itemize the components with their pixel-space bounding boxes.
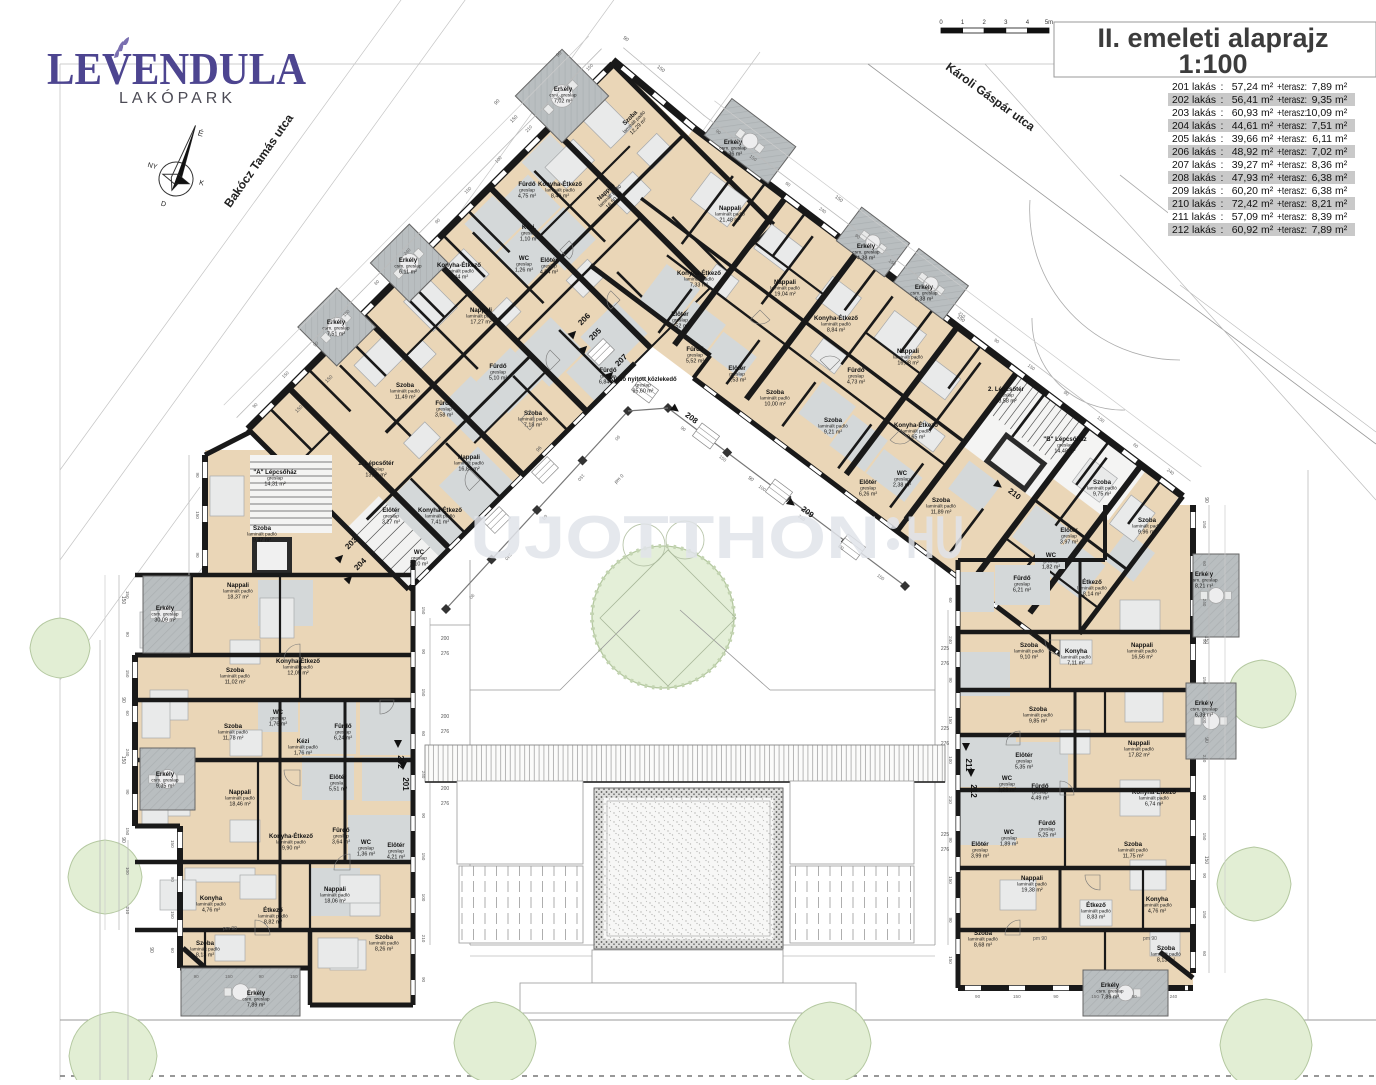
svg-text:9,10 m²: 9,10 m² (1020, 655, 1038, 661)
svg-text:3,27 m²: 3,27 m² (382, 520, 400, 526)
svg-text:Fürdő: Fürdő (332, 827, 350, 834)
svg-text:7,41 m²: 7,41 m² (431, 520, 449, 526)
svg-text:Kézi: Kézi (297, 738, 310, 745)
svg-text:211 lakás: 211 lakás (1172, 211, 1216, 223)
svg-text:39,27: 39,27 (1232, 159, 1258, 171)
svg-text:Nappali: Nappali (227, 582, 249, 589)
svg-text:150: 150 (421, 853, 426, 861)
svg-text:+terasz:: +terasz: (1277, 94, 1307, 106)
svg-text:8,84 m²: 8,84 m² (827, 328, 845, 334)
svg-text:Erkély: Erkély (327, 319, 346, 326)
svg-text:7,89: 7,89 (1312, 224, 1333, 236)
svg-text:1,29 m²: 1,29 m² (998, 788, 1016, 794)
svg-text:m²: m² (1261, 172, 1274, 184)
svg-text:+terasz:: +terasz: (1277, 198, 1307, 210)
svg-text:8,83 m²: 8,83 m² (1087, 915, 1105, 921)
svg-text:90: 90 (259, 974, 265, 979)
svg-text:pm 90: pm 90 (223, 926, 237, 932)
svg-text:4,54 m²: 4,54 m² (540, 270, 558, 276)
svg-text:Elötér: Elötér (1060, 527, 1078, 534)
svg-text:90: 90 (421, 649, 426, 655)
svg-text:+terasz:: +terasz: (1277, 159, 1307, 171)
svg-text:7,89 m²: 7,89 m² (1101, 995, 1119, 1001)
svg-text:Szoba: Szoba (1020, 642, 1039, 649)
svg-text:7,51 m²: 7,51 m² (327, 332, 345, 338)
svg-text:3,99 m²: 3,99 m² (971, 854, 989, 860)
svg-text:150: 150 (421, 607, 426, 615)
svg-text:Fürdő: Fürdő (1038, 820, 1056, 827)
svg-text:Elötér: Elötér (329, 774, 347, 781)
svg-text:150: 150 (948, 876, 953, 884)
svg-text:1,26 m²: 1,26 m² (515, 268, 533, 274)
svg-text:150: 150 (948, 956, 953, 964)
svg-text:m²: m² (1261, 146, 1274, 158)
svg-text:Erkély: Erkély (857, 243, 876, 250)
svg-text:2,10 m²: 2,10 m² (410, 562, 428, 568)
svg-text:WC: WC (414, 549, 425, 556)
svg-text:16,56 m²: 16,56 m² (1131, 655, 1152, 661)
svg-text:8,13 m²: 8,13 m² (196, 953, 214, 959)
svg-text:Kézi.: Kézi. (522, 224, 537, 231)
svg-text:+terasz:: +terasz: (1277, 133, 1307, 145)
svg-text:greslap: greslap (635, 383, 651, 388)
svg-text:m²: m² (1335, 211, 1348, 223)
svg-text:Szoba: Szoba (396, 382, 415, 389)
svg-text:4,21 m²: 4,21 m² (387, 855, 405, 861)
svg-text:Elötér: Elötér (1015, 752, 1033, 759)
svg-text:150: 150 (1091, 994, 1099, 999)
svg-text:18,06 m²: 18,06 m² (324, 899, 345, 905)
svg-text::: : (1221, 224, 1224, 236)
svg-text:pm 90: pm 90 (1143, 936, 1157, 942)
svg-text:6,38: 6,38 (1312, 172, 1333, 184)
svg-text:60: 60 (170, 948, 175, 954)
svg-text:210: 210 (948, 796, 953, 804)
svg-text:Szoba: Szoba (1029, 706, 1048, 713)
svg-text:200: 200 (441, 786, 450, 792)
svg-text:5,10 m²: 5,10 m² (489, 376, 507, 382)
svg-text:Nappali: Nappali (324, 886, 346, 893)
svg-text:Elötér: Elötér (387, 842, 405, 849)
svg-text:m²: m² (1261, 159, 1274, 171)
svg-text:8,26 m²: 8,26 m² (375, 947, 393, 953)
svg-text:5,35 m²: 5,35 m² (1015, 765, 1033, 771)
svg-text:150: 150 (125, 670, 130, 678)
svg-text:100: 100 (948, 756, 953, 764)
svg-text:Étkező: Étkező (1086, 901, 1106, 909)
svg-text:8,82 m²: 8,82 m² (264, 920, 282, 926)
svg-text:"A" Lépcsőház: "A" Lépcsőház (253, 469, 296, 476)
svg-text:150: 150 (125, 828, 130, 836)
svg-text:Erkély: Erkély (399, 257, 418, 264)
svg-text:8,21 m²: 8,21 m² (1195, 584, 1213, 590)
svg-text:3,58 m²: 3,58 m² (435, 413, 453, 419)
svg-text:Elötér: Elötér (971, 841, 989, 848)
svg-text:13,58 m²: 13,58 m² (995, 399, 1016, 405)
svg-text:m²: m² (1261, 120, 1274, 132)
svg-text:9,90 m²: 9,90 m² (282, 846, 300, 852)
svg-text:Fürdő: Fürdő (1031, 783, 1049, 790)
svg-text:6,74 m²: 6,74 m² (1145, 802, 1163, 808)
svg-text::: : (1221, 94, 1224, 106)
svg-text::: : (1221, 159, 1224, 171)
svg-text:48,92: 48,92 (1232, 146, 1258, 158)
svg-text:3,44 m²: 3,44 m² (450, 275, 468, 281)
svg-text:90: 90 (194, 974, 200, 979)
svg-text:m²: m² (1335, 120, 1348, 132)
svg-text:90: 90 (421, 813, 426, 819)
svg-text:5,51 m²: 5,51 m² (329, 787, 347, 793)
svg-text:1,76 m²: 1,76 m² (294, 751, 312, 757)
svg-text:4,73 m²: 4,73 m² (847, 380, 865, 386)
svg-text:207 lakás: 207 lakás (1172, 159, 1216, 171)
svg-text:3,64 m²: 3,64 m² (332, 840, 350, 846)
svg-text:m²: m² (1261, 185, 1274, 197)
svg-text:Fürdő: Fürdő (847, 367, 865, 374)
svg-text:60: 60 (1202, 561, 1207, 567)
svg-text::: : (1221, 198, 1224, 210)
svg-text:6,38 m²: 6,38 m² (915, 297, 933, 303)
svg-text:+terasz:: +terasz: (1277, 81, 1307, 93)
svg-text:240: 240 (421, 771, 426, 779)
svg-text:13,58 m²: 13,58 m² (365, 473, 386, 479)
svg-text:Szoba: Szoba (1093, 479, 1112, 486)
svg-text:Szoba: Szoba (932, 497, 951, 504)
svg-text:14,31 m²: 14,31 m² (264, 482, 285, 488)
svg-text:4,53 m²: 4,53 m² (728, 378, 746, 384)
svg-text:6,11 m²: 6,11 m² (399, 270, 417, 276)
svg-text:6,21 m²: 6,21 m² (1013, 588, 1031, 594)
svg-text:Konyha-Étkező: Konyha-Étkező (1132, 788, 1176, 796)
svg-text:210: 210 (421, 935, 426, 943)
svg-text:21,48 m²: 21,48 m² (719, 218, 740, 224)
svg-text:Konyha: Konyha (1065, 648, 1088, 655)
svg-text:90: 90 (1202, 873, 1207, 879)
svg-text:150: 150 (125, 591, 130, 599)
svg-text:Erkély: Erkély (156, 605, 175, 612)
svg-text:2,38 m²: 2,38 m² (893, 483, 911, 489)
svg-text:Szoba: Szoba (766, 389, 785, 396)
svg-text:4,75 m²: 4,75 m² (518, 194, 536, 200)
svg-text:44,61: 44,61 (1232, 120, 1258, 132)
svg-text::: : (1221, 81, 1224, 93)
svg-text:Konyha-Étkező: Konyha-Étkező (418, 506, 462, 514)
svg-text:Étkező: Étkező (1082, 578, 1102, 586)
svg-text:8,39: 8,39 (1312, 211, 1333, 223)
svg-text:WC: WC (361, 839, 372, 846)
svg-text:+terasz:: +terasz: (1277, 224, 1307, 236)
svg-text:m²: m² (1261, 211, 1274, 223)
svg-text:Nappali: Nappali (1128, 740, 1150, 747)
svg-text:18,37 m²: 18,37 m² (227, 595, 248, 601)
svg-text:150: 150 (1202, 521, 1207, 529)
svg-text::: : (1221, 107, 1224, 119)
svg-text:+terasz:: +terasz: (1277, 172, 1307, 184)
svg-text:95,60 m²: 95,60 m² (633, 389, 654, 395)
svg-text:9,35: 9,35 (1312, 94, 1333, 106)
svg-text:9,35 m²: 9,35 m² (156, 784, 174, 790)
svg-text:pm 90: pm 90 (1033, 936, 1047, 942)
svg-text:3,97 m²: 3,97 m² (1060, 540, 1078, 546)
svg-text:30,09 m²: 30,09 m² (154, 618, 175, 624)
svg-text:150: 150 (225, 974, 233, 979)
svg-text:150: 150 (1203, 856, 1209, 865)
svg-text:Erkély: Erkély (1101, 982, 1120, 989)
svg-text:60: 60 (1132, 994, 1138, 999)
svg-text::: : (1221, 185, 1224, 197)
svg-text:210: 210 (1202, 755, 1207, 763)
svg-text:+terasz:: +terasz: (1277, 211, 1307, 223)
svg-text:60,93: 60,93 (1232, 107, 1258, 119)
svg-text:m²: m² (1335, 133, 1348, 145)
svg-text:WC: WC (1004, 829, 1015, 836)
svg-text:8,21: 8,21 (1312, 198, 1333, 210)
svg-text:Elötér: Elötér (671, 311, 689, 318)
svg-text:14,48 m²: 14,48 m² (1054, 449, 1075, 455)
svg-text:150: 150 (948, 716, 953, 724)
svg-text:100: 100 (1202, 716, 1207, 724)
svg-text:276: 276 (941, 661, 950, 667)
svg-text:6,11: 6,11 (1312, 133, 1332, 145)
svg-text:11,78 m²: 11,78 m² (223, 736, 244, 742)
svg-text:6,24 m²: 6,24 m² (334, 736, 352, 742)
svg-text:210: 210 (125, 906, 130, 914)
svg-text:276: 276 (941, 741, 950, 747)
svg-text:39,66: 39,66 (1232, 133, 1258, 145)
svg-text:+terasz:: +terasz: (1277, 107, 1307, 119)
svg-text:90: 90 (148, 947, 154, 953)
svg-text:Konyha: Konyha (1146, 896, 1169, 903)
svg-text:Fürdő: Fürdő (489, 363, 507, 370)
svg-text:8,68 m²: 8,68 m² (974, 943, 992, 949)
svg-text:Szoba: Szoba (226, 667, 245, 674)
svg-text:60: 60 (421, 731, 426, 737)
svg-text:Étkező: Étkező (263, 906, 283, 914)
svg-text:m²: m² (1261, 107, 1274, 119)
svg-text:Fürdő: Fürdő (518, 181, 536, 188)
svg-text:225: 225 (941, 726, 950, 732)
svg-text:m²: m² (1335, 81, 1348, 93)
svg-text:11,49 m²: 11,49 m² (395, 395, 416, 401)
svg-text:90: 90 (1203, 497, 1209, 503)
svg-text:150: 150 (1202, 911, 1207, 919)
svg-text:150: 150 (170, 840, 175, 848)
svg-text:Konyha-Étkező: Konyha-Étkező (677, 269, 721, 277)
svg-text:m²: m² (1261, 224, 1274, 236)
svg-text:Nappali: Nappali (458, 454, 480, 461)
svg-text:2. Lépcsőtér: 2. Lépcsőtér (988, 386, 1025, 393)
svg-text:Konyha-Étkező: Konyha-Étkező (814, 314, 858, 322)
svg-text:1,10 m²: 1,10 m² (520, 237, 538, 243)
svg-text:Elötér: Elötér (540, 257, 558, 264)
svg-text:Nappali: Nappali (774, 279, 796, 286)
svg-text:1:100: 1:100 (1178, 49, 1247, 79)
svg-text:Szoba: Szoba (1138, 517, 1157, 524)
svg-text:m²: m² (1335, 159, 1348, 171)
svg-text:9,21 m²: 9,21 m² (824, 430, 842, 436)
svg-text:201: 201 (401, 777, 410, 791)
svg-text:225: 225 (941, 646, 950, 652)
svg-text::: : (1221, 146, 1224, 158)
svg-text:208 lakás: 208 lakás (1172, 172, 1216, 184)
svg-text::: : (1221, 172, 1224, 184)
svg-text:WC: WC (1002, 775, 1013, 782)
svg-text:WC: WC (519, 255, 530, 262)
svg-text:150: 150 (1202, 833, 1207, 841)
svg-text:LEVENDULA: LEVENDULA (47, 43, 306, 94)
svg-text:m²: m² (1261, 198, 1274, 210)
svg-text:Erkély: Erkély (1195, 700, 1214, 707)
svg-text:Fürdő: Fürdő (334, 723, 352, 730)
svg-text:m²: m² (1335, 198, 1348, 210)
svg-text:Konyha-Étkező: Konyha-Étkező (276, 657, 320, 665)
svg-text:1,89 m²: 1,89 m² (1000, 842, 1018, 848)
svg-text:1,82 m²: 1,82 m² (1042, 565, 1060, 571)
svg-text:7,89 m²: 7,89 m² (247, 1003, 265, 1009)
svg-text:17,82 m²: 17,82 m² (1128, 753, 1149, 759)
svg-text:1,36 m²: 1,36 m² (357, 852, 375, 858)
svg-text:Fürdő: Fürdő (599, 367, 617, 374)
svg-text:90: 90 (421, 977, 426, 983)
svg-text:m²: m² (1261, 81, 1274, 93)
svg-text:100: 100 (125, 867, 130, 875)
svg-text:Elötér: Elötér (728, 365, 746, 372)
svg-text:Szoba: Szoba (253, 525, 272, 532)
svg-text:150: 150 (421, 689, 426, 697)
svg-text:240: 240 (1170, 994, 1178, 999)
svg-text:Szoba: Szoba (1157, 945, 1176, 952)
svg-text:240: 240 (1202, 599, 1207, 607)
svg-text:206 lakás: 206 lakás (1172, 146, 1216, 158)
svg-text:202 lakás: 202 lakás (1172, 94, 1216, 106)
svg-text:Konyha-Étkező: Konyha-Étkező (437, 261, 481, 269)
svg-text:56,41: 56,41 (1232, 94, 1258, 106)
svg-text:240: 240 (948, 636, 953, 644)
svg-text:200: 200 (441, 714, 450, 720)
svg-text:90: 90 (120, 697, 126, 703)
svg-text:m²: m² (1335, 94, 1348, 106)
svg-text:60,92: 60,92 (1232, 224, 1258, 236)
svg-text:19,04 m²: 19,04 m² (774, 292, 795, 298)
svg-text:LAKÓPARK: LAKÓPARK (119, 88, 236, 107)
svg-text:Szoba: Szoba (196, 940, 215, 947)
svg-text:+terasz:: +terasz: (1277, 120, 1307, 132)
svg-text:WC: WC (1046, 552, 1057, 559)
svg-text:209 lakás: 209 lakás (1172, 185, 1216, 197)
svg-text:18,46 m²: 18,46 m² (229, 802, 250, 808)
svg-text:150: 150 (170, 911, 175, 919)
svg-text:+terasz:: +terasz: (1277, 146, 1307, 158)
svg-text:9,47 m²: 9,47 m² (253, 538, 271, 544)
svg-text:6,26 m²: 6,26 m² (859, 492, 877, 498)
svg-text:60: 60 (1202, 951, 1207, 957)
svg-text:19,38 m²: 19,38 m² (1021, 888, 1042, 894)
svg-text:Nappali: Nappali (719, 205, 741, 212)
svg-text:HU: HU (906, 504, 964, 571)
svg-text:16,08 m²: 16,08 m² (897, 361, 918, 367)
svg-text:Konyha-Étkező: Konyha-Étkező (894, 421, 938, 429)
svg-text:4,49 m²: 4,49 m² (1031, 796, 1049, 802)
svg-text:10,09: 10,09 (1306, 107, 1332, 119)
svg-text:90: 90 (1202, 795, 1207, 801)
svg-text:Konyha: Konyha (200, 895, 223, 902)
svg-text:Nappali: Nappali (1131, 642, 1153, 649)
svg-text:60: 60 (948, 597, 953, 603)
svg-text:90: 90 (1203, 737, 1209, 743)
svg-text:"B" Lépcsőház: "B" Lépcsőház (1043, 436, 1086, 443)
svg-text:8,14 m²: 8,14 m² (1083, 592, 1101, 598)
svg-text:150: 150 (1013, 994, 1021, 999)
svg-text:60,20: 60,20 (1232, 185, 1258, 197)
svg-text:8,36: 8,36 (1312, 159, 1333, 171)
svg-text:Konyha-Étkező: Konyha-Étkező (269, 832, 313, 840)
svg-text:4,76 m²: 4,76 m² (1148, 909, 1166, 915)
svg-text:204 lakás: 204 lakás (1172, 120, 1216, 132)
svg-text:17,27 m²: 17,27 m² (470, 320, 491, 326)
svg-text:60: 60 (125, 711, 130, 717)
svg-text:90: 90 (948, 917, 953, 923)
svg-text:Nappali: Nappali (470, 307, 492, 314)
svg-text:11,02 m²: 11,02 m² (225, 680, 246, 686)
svg-text:6,38: 6,38 (1312, 185, 1333, 197)
svg-text:Szoba: Szoba (974, 930, 993, 937)
svg-text:72,42: 72,42 (1232, 198, 1258, 210)
svg-text:8,13 m²: 8,13 m² (1157, 958, 1175, 964)
svg-text:9,85 m²: 9,85 m² (1029, 719, 1047, 725)
svg-text:Szoba: Szoba (1124, 841, 1143, 848)
svg-text:Elötér: Elötér (382, 507, 400, 514)
svg-text:276: 276 (441, 801, 450, 807)
svg-text:m²: m² (1261, 94, 1274, 106)
svg-text:Konyha-Étkező: Konyha-Étkező (538, 180, 582, 188)
svg-text:100: 100 (421, 894, 426, 902)
svg-text:Nappali: Nappali (229, 789, 251, 796)
svg-text:7,02: 7,02 (1312, 146, 1333, 158)
svg-text:Fürdő: Fürdő (686, 346, 704, 353)
svg-text:3,52 m²: 3,52 m² (671, 324, 689, 330)
svg-text:4,76 m²: 4,76 m² (202, 908, 220, 914)
svg-text:90: 90 (125, 632, 130, 638)
svg-text:Szoba: Szoba (375, 934, 394, 941)
svg-text:90: 90 (948, 837, 953, 843)
svg-text:210 lakás: 210 lakás (1172, 198, 1216, 210)
svg-text::: : (1221, 211, 1224, 223)
svg-text:11,75 m²: 11,75 m² (1123, 854, 1144, 860)
svg-text:90: 90 (948, 677, 953, 683)
svg-text:7,89: 7,89 (1312, 81, 1333, 93)
svg-text:Nappali: Nappali (1021, 875, 1043, 882)
svg-text:90: 90 (195, 552, 200, 558)
svg-text:Fürdő: Fürdő (435, 400, 453, 407)
svg-text:Erkély: Erkély (1195, 571, 1214, 578)
svg-text:276: 276 (941, 847, 950, 853)
svg-text:150: 150 (195, 511, 200, 519)
svg-text:90: 90 (1202, 639, 1207, 645)
svg-text:47,93: 47,93 (1232, 172, 1258, 184)
svg-text:150: 150 (120, 756, 126, 765)
svg-text:150: 150 (290, 974, 298, 979)
svg-text:m²: m² (1335, 107, 1348, 119)
svg-text:203 lakás: 203 lakás (1172, 107, 1216, 119)
svg-text:8,49 m²: 8,49 m² (551, 194, 569, 200)
svg-text:57,24: 57,24 (1232, 81, 1258, 93)
svg-text:m²: m² (1335, 146, 1348, 158)
svg-text:90: 90 (120, 837, 126, 843)
svg-text:240: 240 (125, 749, 130, 757)
svg-text:7,11 m²: 7,11 m² (1067, 661, 1085, 667)
svg-text:Szoba: Szoba (824, 417, 843, 424)
svg-text:8,36 m²: 8,36 m² (724, 152, 742, 158)
